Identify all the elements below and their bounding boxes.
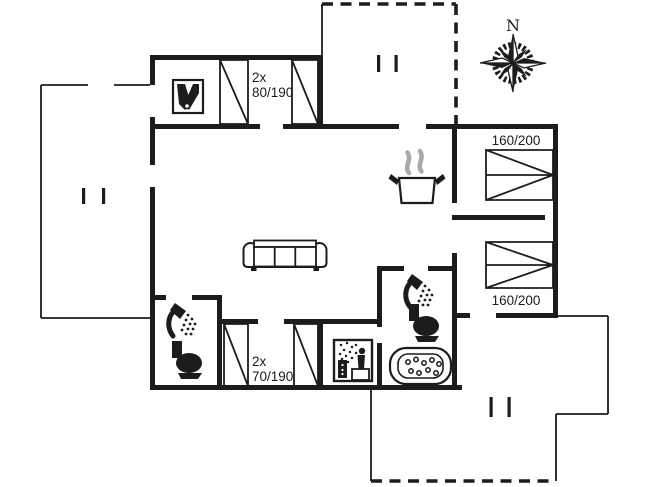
floor-plan: N 2x 80/190 160/200 160/200 2x 70/190: [0, 0, 650, 487]
toilet-icon: [172, 341, 202, 379]
sauna-bench: [352, 369, 369, 380]
toilet-icon: [409, 304, 439, 342]
sauna-person-head: [359, 348, 365, 354]
shower-icon: [169, 303, 197, 336]
compass-north-label: N: [506, 16, 520, 35]
sauna-icon: [334, 340, 372, 381]
cooking-pot-steam-icon: [389, 151, 446, 203]
compass-rose-icon: N: [480, 16, 546, 92]
spa-bath-icon: [390, 348, 451, 384]
single-bed-icon: [220, 60, 318, 386]
sauna-person-body: [358, 355, 366, 369]
label-bedroom-right-top-size: 160/200: [492, 133, 541, 148]
sofa-icon: [244, 241, 327, 272]
label-bedroom-bottom-count: 2x: [252, 354, 267, 369]
floor-plan-canvas: N 2x 80/190 160/200 160/200 2x 70/190: [0, 0, 650, 487]
shower-icon: [406, 274, 434, 307]
label-bedroom-right-bottom-size: 160/200: [492, 293, 541, 308]
label-bedroom-top-count: 2x: [252, 70, 267, 85]
wood-stove-icon: [173, 80, 203, 113]
label-bedroom-bottom-size: 70/190: [252, 369, 293, 384]
label-bedroom-top-size: 80/190: [252, 85, 293, 100]
